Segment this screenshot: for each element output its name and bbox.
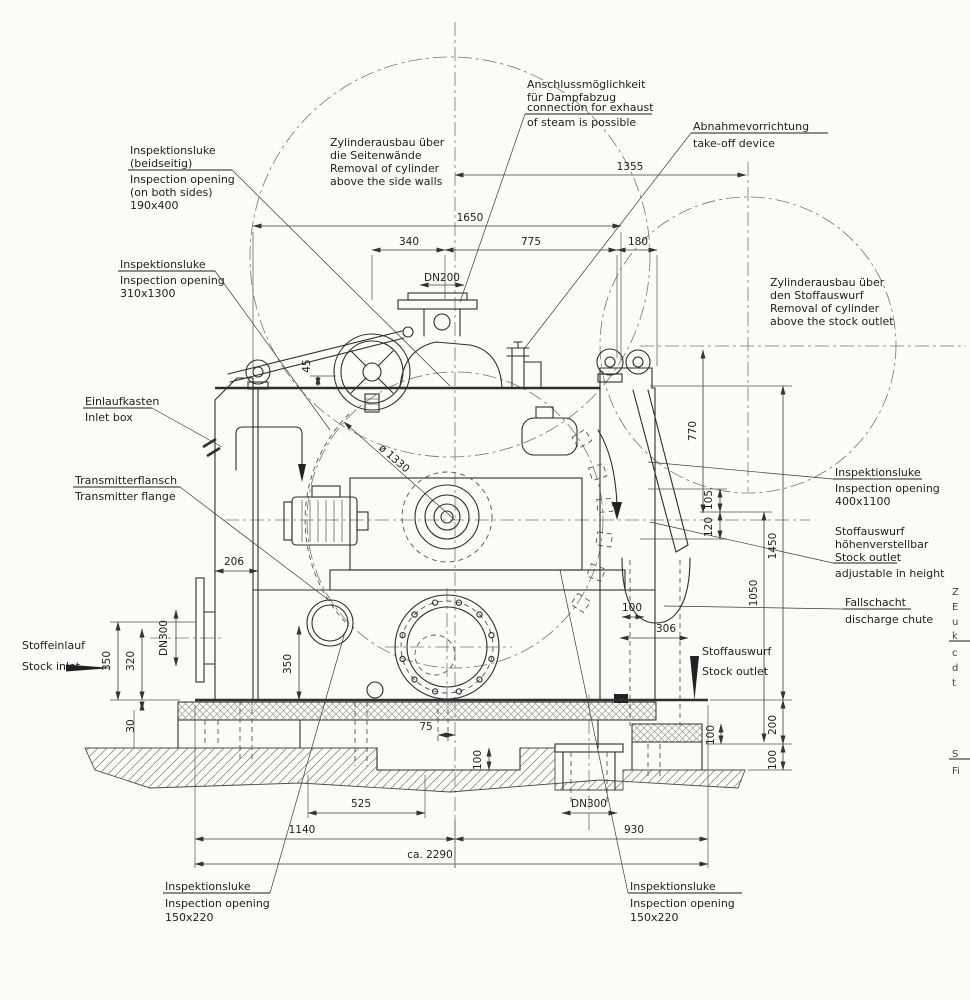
- dim-770: 770: [687, 421, 699, 441]
- dn200-connection: [398, 293, 502, 388]
- note-line: Inspektionsluke: [165, 880, 251, 893]
- note-clipped-edge-text: Z E u k c d t S Fi: [952, 587, 960, 777]
- note-line: S: [952, 749, 958, 760]
- note-line: c: [952, 648, 958, 659]
- small-port: [367, 682, 383, 698]
- note-cylinder-outlet: Zylinderausbau über den Stoffauswurf Rem…: [770, 276, 894, 328]
- note-line: (beidseitig): [130, 157, 192, 170]
- engineering-drawing-svg: 1355 1650 340 775 180 DN200 770 1450 105…: [0, 0, 970, 1000]
- drive-motor: [284, 486, 368, 545]
- gearbox: [330, 472, 625, 590]
- dim-1650: 1650: [457, 212, 484, 224]
- note-line: Stoffauswurf: [702, 645, 773, 658]
- dim-dn300-bottom: DN300: [571, 798, 607, 810]
- note-line: Removal of cylinder: [330, 162, 440, 175]
- note-inspection-150x220-left: Inspektionsluke Inspection opening 150x2…: [165, 880, 270, 924]
- note-stock-outlet: Stoffauswurf Stock outlet: [702, 645, 773, 678]
- note-inspection-400x1100: Inspektionsluke Inspection opening 400x1…: [835, 466, 940, 508]
- dim-340: 340: [399, 236, 419, 248]
- note-line: Z: [952, 587, 959, 598]
- note-line: Zylinderausbau über: [330, 136, 445, 149]
- note-line: Inlet box: [85, 411, 133, 424]
- dim-100-pit: 100: [472, 750, 484, 770]
- dim-1050: 1050: [748, 580, 760, 607]
- dim-775: 775: [521, 236, 541, 248]
- note-line: Stoffauswurf: [835, 525, 906, 538]
- note-line: Stoffeinlauf: [22, 639, 86, 652]
- dim-2290: ca. 2290: [407, 849, 453, 861]
- note-stock-inlet: Stoffeinlauf Stock inlet: [22, 639, 86, 673]
- dim-206: 206: [224, 556, 244, 568]
- note-line: Inspektionsluke: [630, 880, 716, 893]
- dim-525: 525: [351, 798, 371, 810]
- dim-1450: 1450: [767, 533, 779, 560]
- note-line: höhenverstellbar: [835, 538, 929, 551]
- note-line: Inspektionsluke: [835, 466, 921, 479]
- note-line: above the side walls: [330, 175, 443, 188]
- note-line: u: [952, 617, 958, 628]
- note-line: E: [952, 602, 958, 613]
- note-line: Inspektionsluke: [130, 144, 216, 157]
- note-line: Anschlussmöglichkeit: [527, 78, 646, 91]
- machine-body: [195, 368, 708, 726]
- note-line: Inspection opening: [835, 482, 940, 495]
- note-line: Inspection opening: [165, 897, 270, 910]
- note-line: Stock outlet: [835, 551, 902, 564]
- annotations: Anschlussmöglichkeit für Dampfabzug conn…: [22, 78, 960, 924]
- note-line: above the stock outlet: [770, 315, 894, 328]
- dim-1140: 1140: [289, 824, 316, 836]
- note-line: Inspection opening: [120, 274, 225, 287]
- note-line: adjustable in height: [835, 567, 945, 580]
- note-inspection-310x1300: Inspektionsluke Inspection opening 310x1…: [120, 258, 225, 300]
- note-line: die Seitenwände: [330, 149, 422, 162]
- note-line: (on both sides): [130, 186, 213, 199]
- note-line: 310x1300: [120, 287, 176, 300]
- dim-30: 30: [125, 719, 137, 732]
- engineering-drawing-sheet: 1355 1650 340 775 180 DN200 770 1450 105…: [0, 0, 970, 1000]
- dim-180: 180: [628, 236, 648, 248]
- note-line: Inspektionsluke: [120, 258, 206, 271]
- stock-outlet-arrow: [690, 656, 699, 700]
- note-line: Inspection opening: [130, 173, 235, 186]
- note-line: Transmitter flange: [74, 490, 176, 503]
- inlet-flange-dn300: [196, 578, 215, 682]
- note-line: k: [952, 631, 958, 642]
- dim-75: 75: [419, 721, 432, 733]
- dim-306: 306: [656, 623, 676, 635]
- note-line: Transmitterflansch: [74, 474, 177, 487]
- note-line: 400x1100: [835, 495, 891, 508]
- flow-indicators: [203, 427, 622, 520]
- note-line: d: [952, 663, 958, 674]
- dim-200: 200: [767, 715, 779, 735]
- note-line: Stock inlet: [22, 660, 81, 673]
- dim-100-step: 100: [705, 725, 717, 745]
- note-line: Fi: [952, 766, 960, 777]
- dim-930: 930: [624, 824, 644, 836]
- dim-320: 320: [125, 651, 137, 671]
- dim-105: 105: [703, 490, 715, 510]
- note-line: Zylinderausbau über: [770, 276, 885, 289]
- blower-unit: [522, 407, 577, 455]
- note-inspection-190x400: Inspektionsluke (beidseitig) Inspection …: [130, 144, 235, 212]
- note-steam-connection: Anschlussmöglichkeit für Dampfabzug conn…: [527, 78, 654, 129]
- transmitter-flange-circle: [307, 600, 353, 646]
- note-outlet-adjustable: Stoffauswurf höhenverstellbar Stock outl…: [835, 525, 945, 580]
- note-line: Removal of cylinder: [770, 302, 880, 315]
- dim-100-right: 100: [767, 750, 779, 770]
- note-line: den Stoffauswurf: [770, 289, 865, 302]
- dim-45: 45: [301, 359, 313, 372]
- note-line: Abnahmevorrichtung: [693, 120, 809, 133]
- note-line: of steam is possible: [527, 116, 636, 129]
- dim-dia-1330: ø 1330: [376, 442, 411, 475]
- hinged-lever: [228, 327, 413, 382]
- dim-1355: 1355: [617, 161, 644, 173]
- dim-350-mid: 350: [282, 654, 294, 674]
- note-line: connection for exhaust: [527, 101, 654, 114]
- note-line: 150x220: [630, 911, 679, 924]
- note-transmitter-flange: Transmitterflansch Transmitter flange: [74, 474, 177, 503]
- note-line: Einlaufkasten: [85, 395, 159, 408]
- seal-pad: [614, 694, 628, 703]
- note-line: 190x400: [130, 199, 179, 212]
- note-cylinder-side: Zylinderausbau über die Seitenwände Remo…: [330, 136, 445, 188]
- note-line: 150x220: [165, 911, 214, 924]
- note-inspection-150x220-right: Inspektionsluke Inspection opening 150x2…: [630, 880, 735, 924]
- note-line: take-off device: [693, 137, 775, 150]
- dim-dn200: DN200: [424, 272, 460, 284]
- note-line: Fallschacht: [845, 596, 907, 609]
- note-line: Inspection opening: [630, 897, 735, 910]
- note-line: Stock outlet: [702, 665, 769, 678]
- note-takeoff-device: Abnahmevorrichtung take-off device: [693, 120, 809, 150]
- note-inlet-box: Einlaufkasten Inlet box: [85, 395, 159, 424]
- note-line: t: [952, 678, 956, 689]
- note-line: discharge chute: [845, 613, 933, 626]
- note-fallschacht: Fallschacht discharge chute: [845, 596, 933, 626]
- foundation: [85, 694, 745, 805]
- dim-100-chute: 100: [622, 602, 642, 614]
- dim-dn300-left: DN300: [158, 620, 170, 656]
